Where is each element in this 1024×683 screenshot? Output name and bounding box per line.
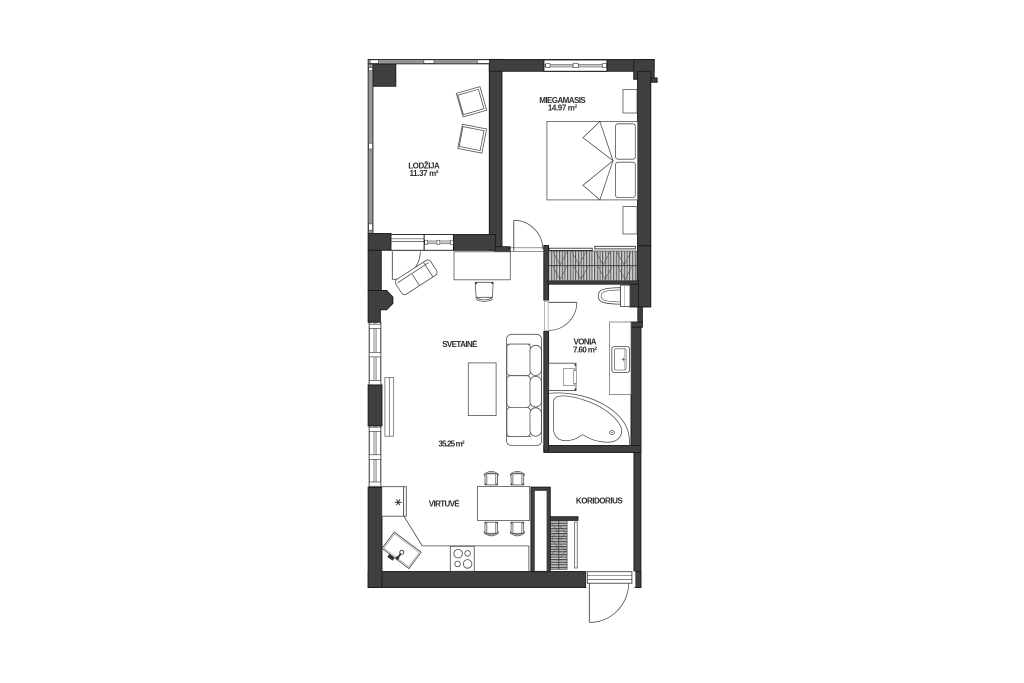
svg-text:11.37 m²: 11.37 m² xyxy=(410,169,439,178)
svg-text:SVETAINĖ: SVETAINĖ xyxy=(442,340,478,349)
svg-text:14.97 m²: 14.97 m² xyxy=(548,104,578,113)
svg-text:7.60 m²: 7.60 m² xyxy=(573,345,597,354)
svg-text:35.25 m²: 35.25 m² xyxy=(438,439,465,448)
svg-text:VIRTUVĖ: VIRTUVĖ xyxy=(429,499,460,508)
svg-text:KORIDORIUS: KORIDORIUS xyxy=(576,496,623,505)
